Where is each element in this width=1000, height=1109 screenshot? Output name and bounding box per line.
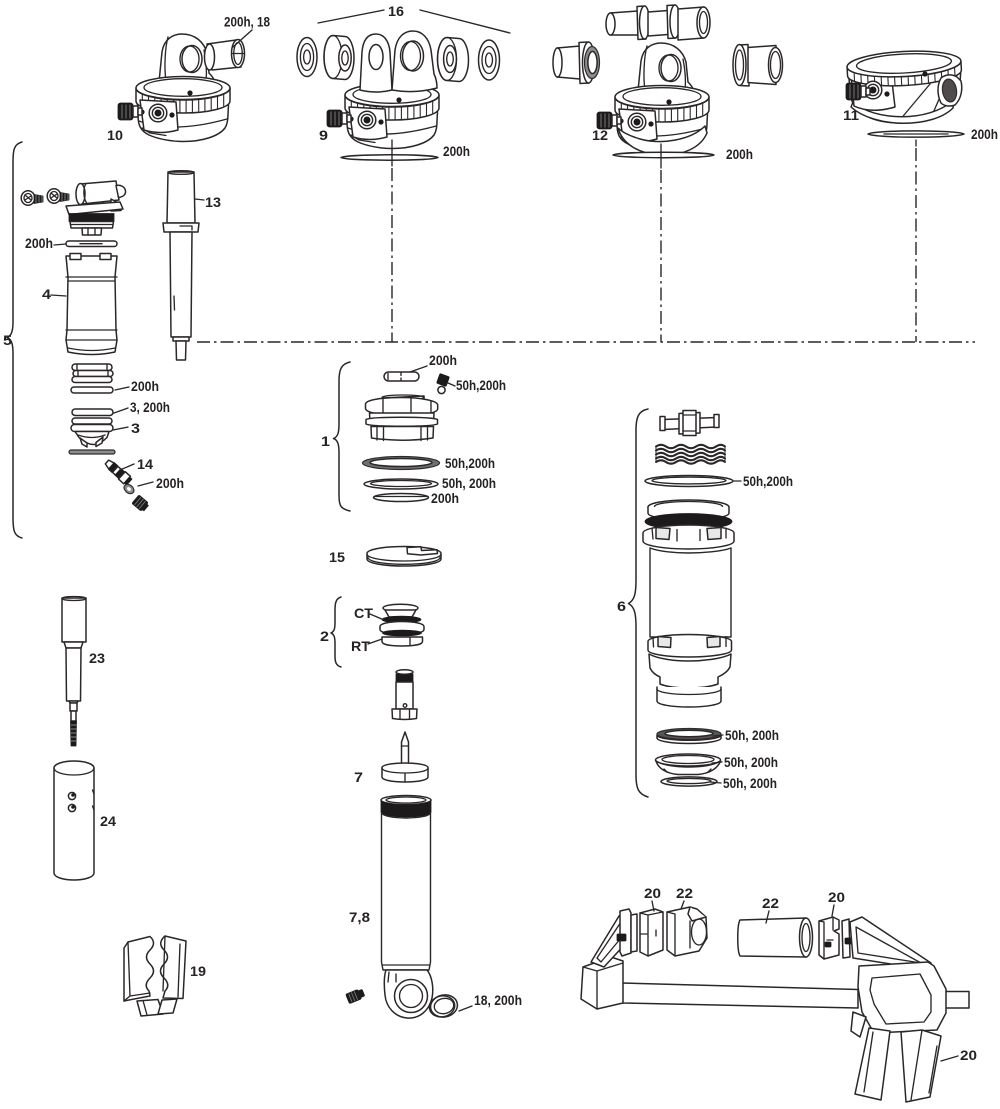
svg-text:50h,200h: 50h,200h bbox=[743, 473, 793, 489]
svg-text:15: 15 bbox=[329, 549, 345, 565]
svg-text:1: 1 bbox=[321, 433, 330, 449]
svg-text:200h: 200h bbox=[726, 146, 753, 162]
svg-text:22: 22 bbox=[762, 895, 779, 911]
svg-text:24: 24 bbox=[100, 813, 116, 829]
svg-text:14: 14 bbox=[137, 456, 153, 472]
svg-text:200h: 200h bbox=[443, 143, 470, 159]
svg-text:20: 20 bbox=[828, 889, 845, 905]
svg-text:50h,200h: 50h,200h bbox=[456, 377, 506, 393]
svg-text:4: 4 bbox=[42, 286, 51, 302]
svg-text:7,8: 7,8 bbox=[349, 909, 370, 925]
svg-text:3, 200h: 3, 200h bbox=[130, 399, 170, 415]
svg-text:7: 7 bbox=[354, 769, 363, 785]
svg-text:200h: 200h bbox=[25, 235, 53, 251]
svg-text:50h, 200h: 50h, 200h bbox=[442, 475, 496, 491]
svg-text:50h, 200h: 50h, 200h bbox=[724, 754, 778, 770]
svg-text:10: 10 bbox=[107, 127, 123, 143]
svg-text:20: 20 bbox=[960, 1047, 977, 1063]
svg-text:200h: 200h bbox=[971, 126, 998, 142]
svg-text:200h: 200h bbox=[429, 352, 457, 368]
svg-text:2: 2 bbox=[320, 628, 329, 644]
svg-text:CT: CT bbox=[354, 605, 373, 621]
svg-text:5: 5 bbox=[3, 332, 12, 348]
svg-text:9: 9 bbox=[319, 127, 328, 143]
svg-text:16: 16 bbox=[388, 3, 404, 19]
svg-text:50h,200h: 50h,200h bbox=[445, 455, 495, 471]
svg-text:13: 13 bbox=[205, 194, 221, 210]
svg-text:19: 19 bbox=[190, 963, 206, 979]
svg-text:200h: 200h bbox=[156, 475, 184, 491]
svg-text:200h: 200h bbox=[431, 490, 459, 506]
svg-text:50h, 200h: 50h, 200h bbox=[723, 775, 777, 791]
svg-text:50h, 200h: 50h, 200h bbox=[725, 727, 779, 743]
svg-text:3: 3 bbox=[131, 420, 140, 436]
svg-text:23: 23 bbox=[89, 650, 105, 666]
svg-text:6: 6 bbox=[617, 598, 626, 614]
svg-text:200h, 18: 200h, 18 bbox=[224, 14, 270, 30]
svg-text:200h: 200h bbox=[131, 378, 159, 394]
svg-text:11: 11 bbox=[843, 107, 859, 123]
svg-text:18, 200h: 18, 200h bbox=[474, 992, 522, 1008]
svg-text:22: 22 bbox=[676, 885, 693, 901]
svg-text:20: 20 bbox=[644, 885, 661, 901]
svg-text:12: 12 bbox=[592, 127, 608, 143]
svg-text:RT: RT bbox=[351, 638, 370, 654]
